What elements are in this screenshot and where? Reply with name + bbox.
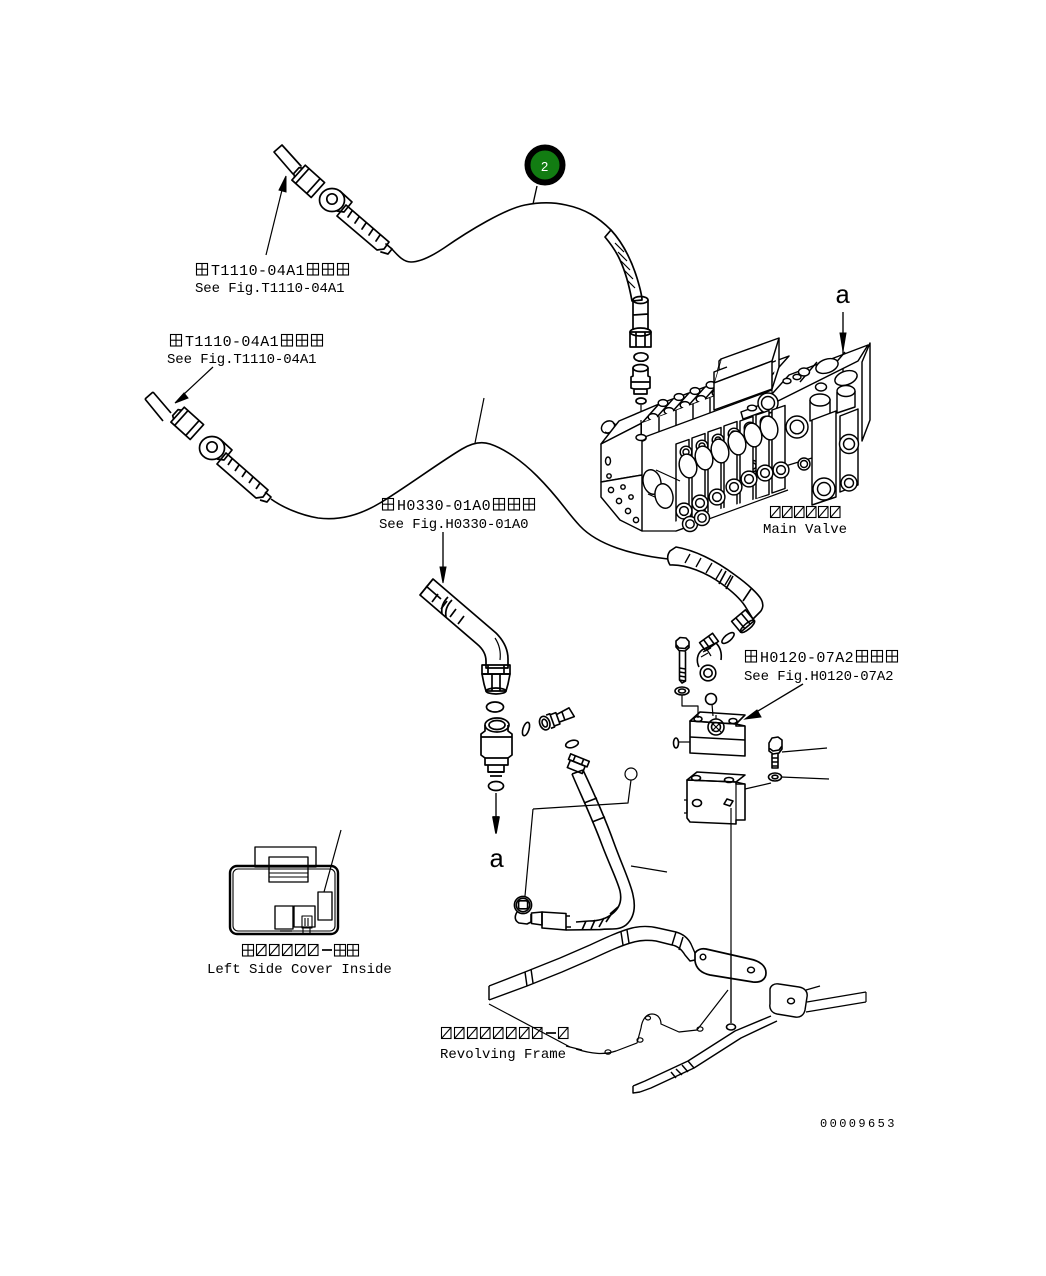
svg-text:H0120-07A2: H0120-07A2 [760,650,854,667]
svg-text:2: 2 [541,159,548,174]
svg-text:T1110-04A1: T1110-04A1 [185,334,279,351]
svg-text:See Fig.T1110-04A1: See Fig.T1110-04A1 [167,352,316,368]
svg-text:a: a [489,845,505,875]
svg-text:Left Side Cover Inside: Left Side Cover Inside [207,962,392,978]
svg-text:Revolving Frame: Revolving Frame [440,1047,566,1063]
svg-text:See Fig.H0120-07A2: See Fig.H0120-07A2 [744,669,893,685]
svg-text:See Fig.H0330-01A0: See Fig.H0330-01A0 [379,517,528,533]
svg-text:See Fig.T1110-04A1: See Fig.T1110-04A1 [195,281,344,297]
svg-text:a: a [835,281,851,311]
svg-text:H0330-01A0: H0330-01A0 [397,498,491,515]
svg-text:Main Valve: Main Valve [763,522,847,538]
svg-text:00009653: 00009653 [820,1117,897,1131]
svg-text:T1110-04A1: T1110-04A1 [211,263,305,280]
